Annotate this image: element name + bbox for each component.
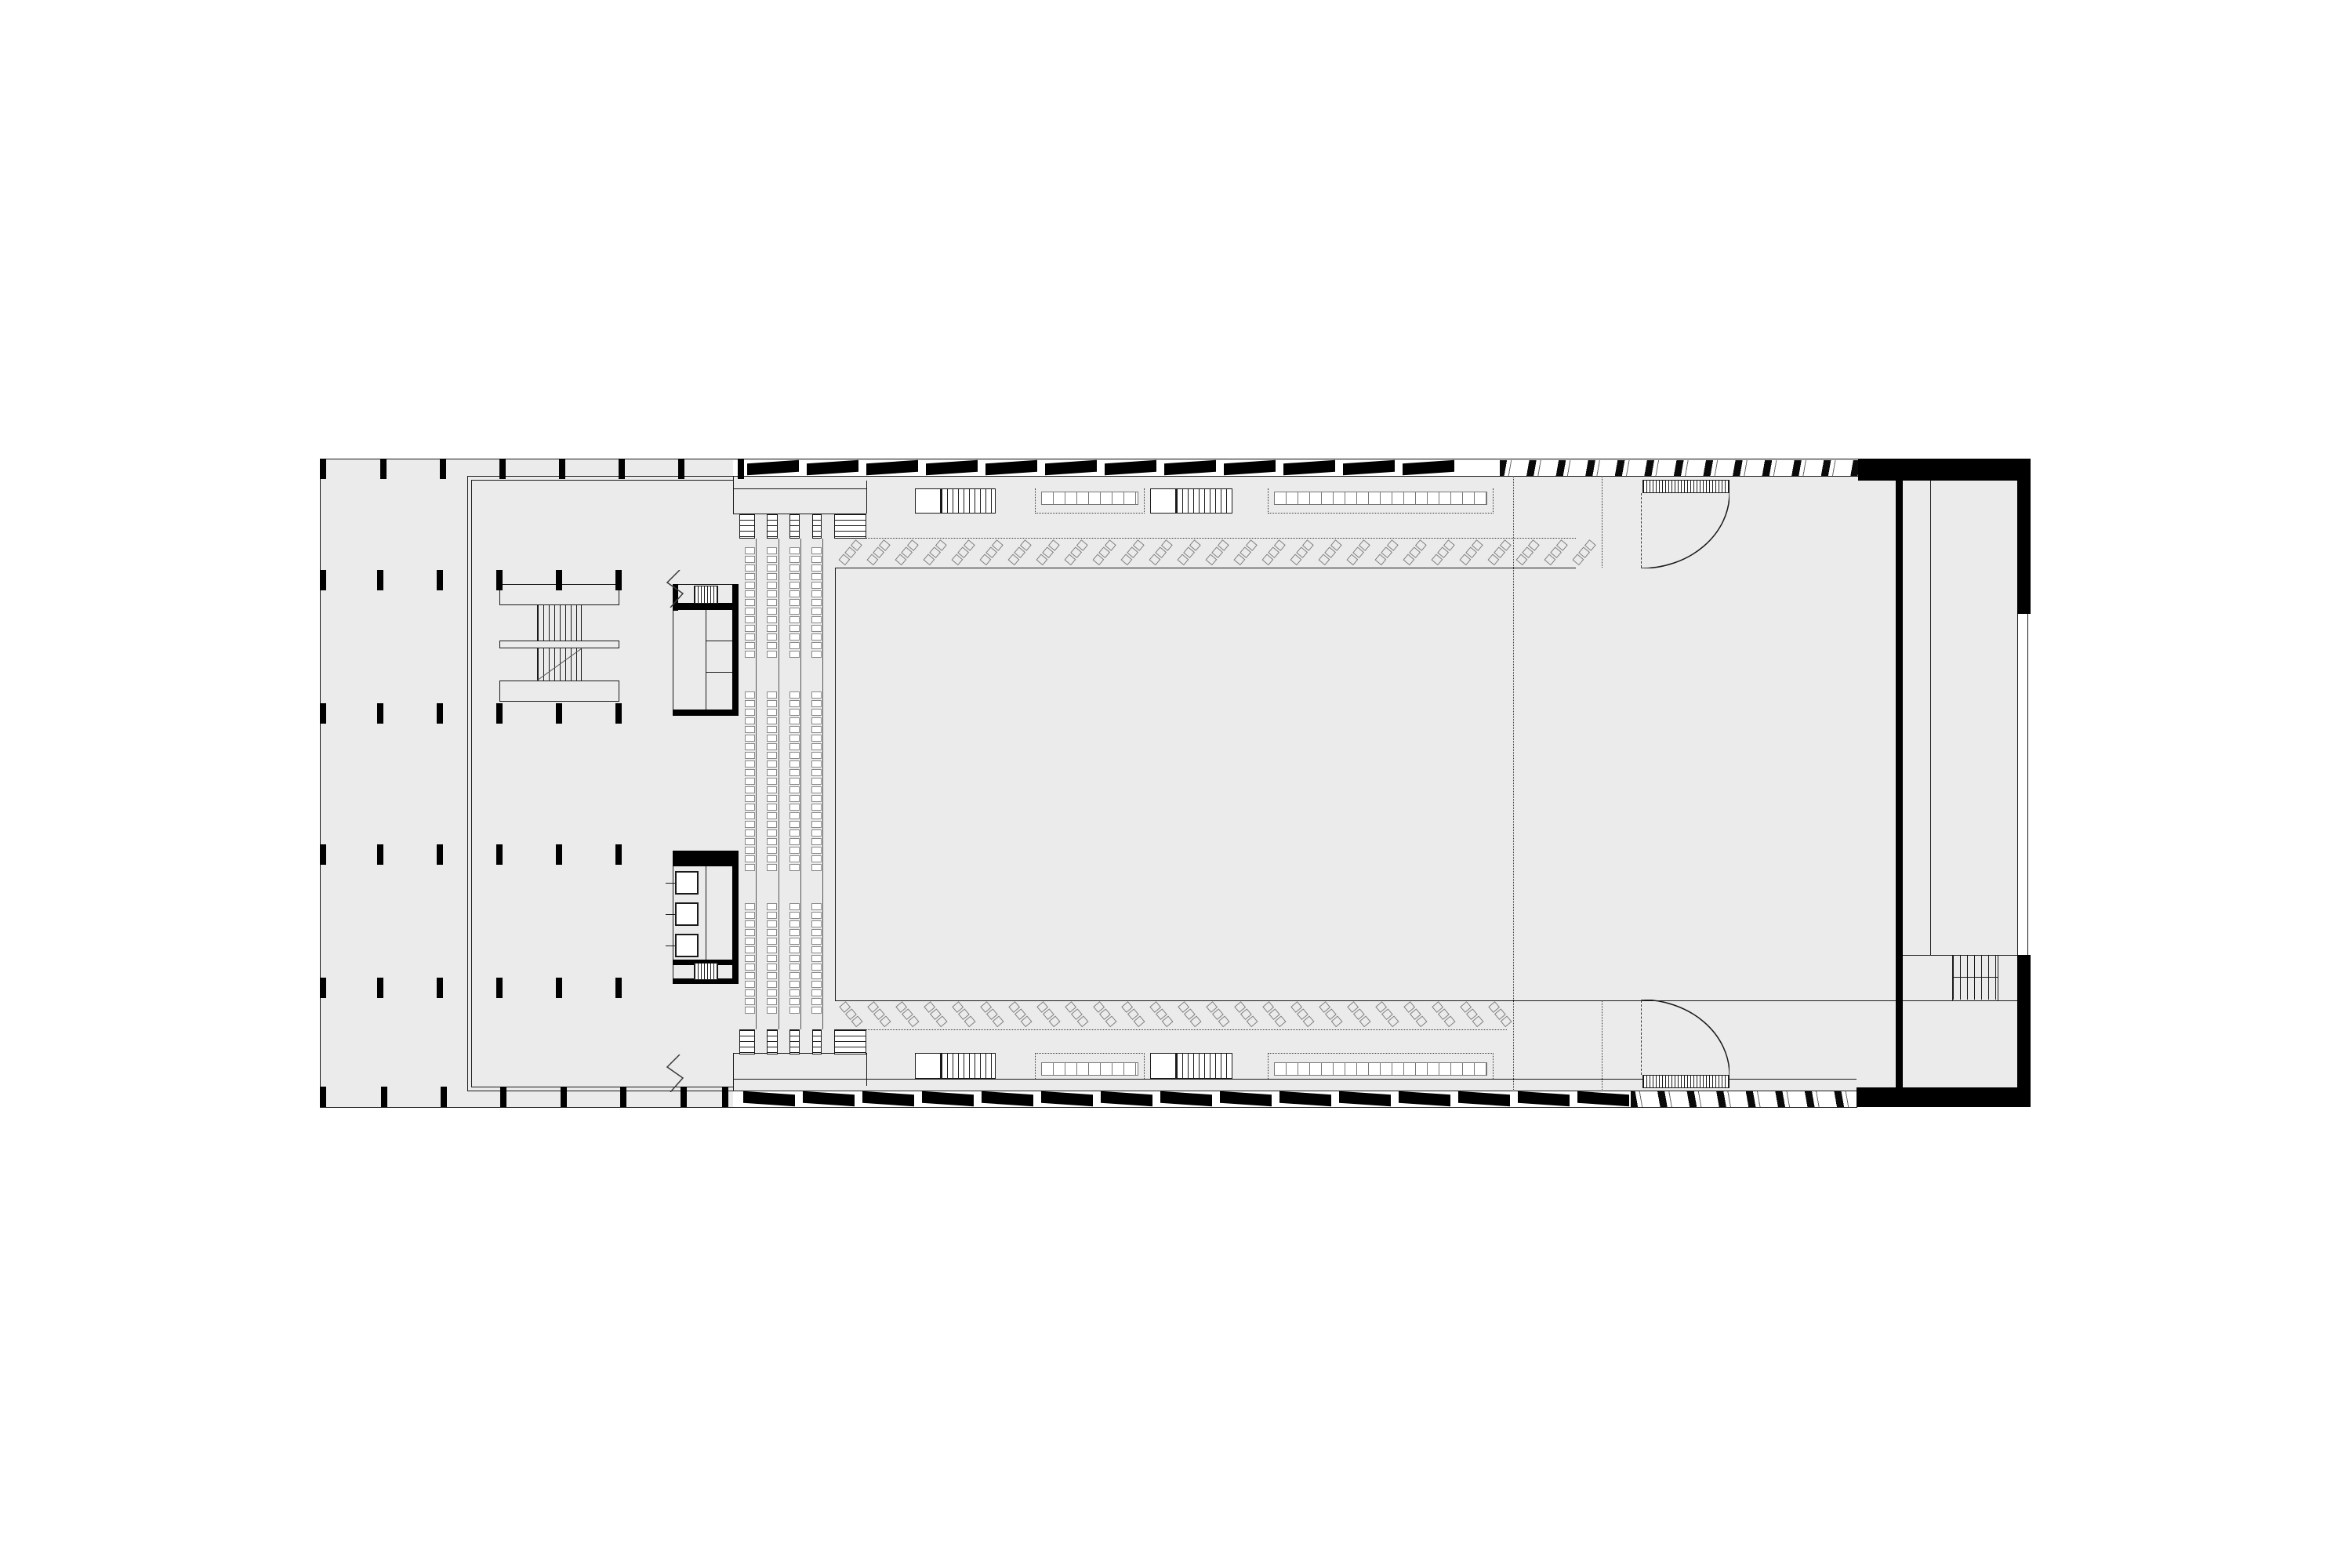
seat: [745, 804, 755, 811]
wall-louver: [1577, 1091, 1629, 1107]
acoustic-panel-chain: [1403, 1001, 1427, 1028]
wall-louver: [1160, 1091, 1212, 1107]
seat: [767, 599, 777, 606]
seat: [811, 903, 822, 910]
seat: [745, 743, 755, 750]
seat: [811, 838, 822, 845]
seat: [767, 582, 777, 589]
seat: [811, 599, 822, 606]
seat: [767, 955, 777, 962]
folded-seat-row: [1274, 492, 1487, 505]
seat: [767, 938, 777, 945]
seat: [811, 642, 822, 649]
acoustic-panel-chain: [923, 539, 947, 566]
seat: [811, 955, 822, 962]
seat: [811, 829, 822, 837]
seat: [789, 972, 800, 979]
seat: [767, 625, 777, 632]
column-tick: [556, 703, 562, 724]
aisle-steps: [812, 514, 822, 539]
entry-landing: [1150, 1053, 1176, 1079]
acoustic-panel-chain: [923, 1001, 947, 1028]
seat: [811, 847, 822, 854]
seat: [789, 735, 800, 742]
seat: [767, 608, 777, 615]
seat: [767, 972, 777, 979]
seat: [789, 855, 800, 862]
seat: [789, 821, 800, 828]
seat: [745, 642, 755, 649]
column-tick: [722, 1087, 728, 1107]
wall-louver: [1343, 460, 1395, 476]
seat: [789, 903, 800, 910]
wall-louver: [1399, 1091, 1450, 1107]
seat: [789, 946, 800, 953]
folded-seat-row: [1041, 492, 1138, 505]
seat: [811, 616, 822, 623]
column-tick: [320, 1087, 326, 1107]
seat: [789, 752, 800, 759]
seat: [789, 829, 800, 837]
seat: [811, 821, 822, 828]
seat: [811, 972, 822, 979]
column-tick: [380, 459, 387, 479]
column-tick: [377, 703, 383, 724]
seat: [767, 912, 777, 919]
seat: [789, 633, 800, 641]
column-tick: [615, 844, 622, 865]
acoustic-panel-chain: [866, 1001, 891, 1028]
seat: [767, 847, 777, 854]
seat: [811, 795, 822, 802]
seat: [767, 920, 777, 927]
acoustic-panel-chain: [1036, 1001, 1060, 1028]
seat: [811, 769, 822, 776]
acoustic-panel-chain: [1346, 1001, 1370, 1028]
wall-louver: [1224, 460, 1276, 476]
acoustic-panel-chain: [1007, 539, 1032, 566]
floor-plan: [320, 457, 2031, 1141]
seat: [745, 778, 755, 785]
column-tick: [320, 459, 326, 479]
seat: [745, 752, 755, 759]
seat: [789, 691, 800, 699]
column-tick: [377, 570, 383, 590]
seat: [811, 855, 822, 862]
acoustic-panel-chain: [1205, 1001, 1229, 1028]
aisle-steps: [767, 514, 778, 539]
column-tick: [556, 570, 562, 590]
seat: [811, 786, 822, 793]
seat: [745, 855, 755, 862]
column-tick: [496, 978, 503, 998]
entry-stair-treads: [1176, 488, 1232, 514]
seat: [789, 700, 800, 707]
column-tick: [496, 703, 503, 724]
seat: [745, 769, 755, 776]
seat: [745, 955, 755, 962]
entry-stair-treads: [941, 488, 996, 514]
wall-louver: [807, 460, 858, 476]
seat: [767, 590, 777, 597]
seat: [789, 938, 800, 945]
acoustic-panel-chain: [1318, 539, 1342, 566]
acoustic-panel-chain: [1374, 539, 1399, 566]
seat: [811, 912, 822, 919]
seat: [745, 547, 755, 554]
seat: [811, 564, 822, 572]
seat: [789, 786, 800, 793]
seat: [811, 760, 822, 768]
seat: [789, 625, 800, 632]
seat: [767, 743, 777, 750]
seat: [745, 760, 755, 768]
entry-landing: [1150, 488, 1176, 514]
wall-louver: [803, 1091, 855, 1107]
seat: [767, 786, 777, 793]
seat: [789, 573, 800, 580]
seat: [745, 838, 755, 845]
seat: [789, 651, 800, 658]
entry-stair-treads: [941, 1053, 996, 1079]
aisle-steps: [789, 514, 800, 539]
aisle-steps: [739, 514, 755, 539]
aisle-steps: [767, 1029, 778, 1054]
column-tick: [437, 570, 443, 590]
seat: [789, 760, 800, 768]
seat: [789, 795, 800, 802]
acoustic-panel-chain: [1487, 1001, 1512, 1028]
column-tick: [320, 570, 326, 590]
wall-louver: [1041, 1091, 1093, 1107]
generated-layer: [320, 457, 2031, 1141]
wall-louver: [743, 1091, 795, 1107]
seat: [811, 582, 822, 589]
seat: [767, 651, 777, 658]
column-tick: [437, 978, 443, 998]
column-tick: [615, 570, 622, 590]
page: { "document": { "type": "architectural-f…: [0, 0, 2352, 1568]
acoustic-panel-chain: [1177, 539, 1201, 566]
acoustic-panel-chain: [1459, 539, 1483, 566]
seat: [789, 564, 800, 572]
aisle-steps: [834, 514, 866, 539]
seat: [767, 778, 777, 785]
seat: [789, 804, 800, 811]
wall-louver: [1045, 460, 1097, 476]
acoustic-panel-chain: [895, 539, 919, 566]
seat: [745, 903, 755, 910]
wall-louver: [926, 460, 978, 476]
seat: [789, 812, 800, 819]
seat: [767, 760, 777, 768]
acoustic-panel-chain: [1149, 1001, 1173, 1028]
seat: [745, 573, 755, 580]
wall-louver-fine: [1631, 1091, 1857, 1107]
seat: [745, 608, 755, 615]
seat: [767, 829, 777, 837]
seat: [745, 920, 755, 927]
seat: [767, 616, 777, 623]
seat: [745, 556, 755, 563]
seat: [789, 590, 800, 597]
seat: [767, 804, 777, 811]
seat: [767, 1007, 777, 1014]
seat: [811, 864, 822, 871]
column-tick: [678, 459, 684, 479]
acoustic-panel-chain: [1459, 1001, 1483, 1028]
seat: [811, 691, 822, 699]
seat: [767, 946, 777, 953]
seat: [745, 795, 755, 802]
seat: [767, 547, 777, 554]
seat: [789, 998, 800, 1005]
column-tick: [320, 978, 326, 998]
seat: [745, 616, 755, 623]
seat: [789, 864, 800, 871]
acoustic-panel-chain: [1149, 539, 1173, 566]
column-tick: [738, 459, 744, 479]
seating-aisle-line: [779, 539, 779, 1029]
seat: [767, 717, 777, 724]
folded-seat-row: [1041, 1062, 1138, 1076]
seat: [789, 769, 800, 776]
wall-louver: [1403, 460, 1454, 476]
seat: [811, 633, 822, 641]
acoustic-panel-chain: [1092, 1001, 1116, 1028]
seat: [767, 573, 777, 580]
seat: [745, 981, 755, 988]
seat: [789, 1007, 800, 1014]
seat: [811, 743, 822, 750]
folded-seat-row: [1274, 1062, 1487, 1076]
column-tick: [496, 570, 503, 590]
column-tick: [615, 978, 622, 998]
seat: [811, 964, 822, 971]
seat: [767, 709, 777, 716]
acoustic-panel-chain: [951, 539, 975, 566]
column-tick: [556, 978, 562, 998]
seat: [767, 821, 777, 828]
seat: [811, 804, 822, 811]
column-tick: [381, 1087, 387, 1107]
wall-louver: [1518, 1091, 1570, 1107]
wall-louver: [1220, 1091, 1272, 1107]
seat: [767, 769, 777, 776]
acoustic-panel-chain: [1431, 539, 1455, 566]
seat: [745, 726, 755, 733]
seat: [811, 929, 822, 936]
seat: [767, 564, 777, 572]
seat: [811, 625, 822, 632]
aisle-steps: [789, 1029, 800, 1054]
wall-louver: [1105, 460, 1156, 476]
seat: [789, 920, 800, 927]
seat: [811, 946, 822, 953]
seat: [789, 709, 800, 716]
seat: [745, 786, 755, 793]
seat: [767, 795, 777, 802]
aisle-steps: [834, 1029, 866, 1054]
seat: [789, 599, 800, 606]
wall-louver: [985, 460, 1037, 476]
seat: [767, 812, 777, 819]
acoustic-panel-chain: [838, 539, 862, 566]
acoustic-panel-chain: [1318, 1001, 1342, 1028]
seat: [745, 946, 755, 953]
wall-louver: [747, 460, 799, 476]
seat: [811, 981, 822, 988]
acoustic-panel-chain: [979, 1001, 1004, 1028]
acoustic-panel-chain: [1120, 539, 1145, 566]
seat: [745, 812, 755, 819]
column-tick: [681, 1087, 687, 1107]
seat: [745, 691, 755, 699]
seat: [811, 700, 822, 707]
aisle-steps: [812, 1029, 822, 1054]
seat: [745, 989, 755, 996]
wall-louver: [866, 460, 918, 476]
seat: [811, 778, 822, 785]
seat: [811, 651, 822, 658]
seat: [767, 998, 777, 1005]
seat: [745, 998, 755, 1005]
seat: [745, 633, 755, 641]
acoustic-panel-chain: [1346, 539, 1370, 566]
seat: [745, 847, 755, 854]
acoustic-panel-chain: [1544, 539, 1568, 566]
entry-stair-treads: [1176, 1053, 1232, 1079]
acoustic-panel-chain: [1572, 539, 1596, 566]
seat: [745, 599, 755, 606]
column-tick: [437, 844, 443, 865]
acoustic-panel-chain: [951, 1001, 975, 1028]
acoustic-panel-chain: [1431, 1001, 1455, 1028]
column-tick: [620, 1087, 626, 1107]
acoustic-panel-chain: [979, 539, 1004, 566]
seat: [745, 821, 755, 828]
seat: [767, 691, 777, 699]
seat: [745, 709, 755, 716]
seat: [745, 864, 755, 871]
seat: [789, 743, 800, 750]
aisle-steps: [739, 1029, 755, 1054]
column-tick: [499, 459, 506, 479]
wall-louver: [982, 1091, 1033, 1107]
seat: [789, 929, 800, 936]
acoustic-panel-chain: [1290, 1001, 1314, 1028]
seat: [811, 547, 822, 554]
seat: [811, 998, 822, 1005]
seat: [789, 547, 800, 554]
column-tick: [440, 459, 446, 479]
seat: [745, 717, 755, 724]
column-tick: [496, 844, 503, 865]
seat: [745, 700, 755, 707]
seating-aisle-line: [756, 539, 757, 1029]
seat: [811, 938, 822, 945]
seat: [767, 726, 777, 733]
column-tick: [559, 459, 565, 479]
seat: [789, 642, 800, 649]
seat: [745, 625, 755, 632]
seat: [811, 608, 822, 615]
acoustic-panel-chain: [1290, 539, 1314, 566]
acoustic-panel-chain: [1092, 539, 1116, 566]
seat: [789, 717, 800, 724]
acoustic-panel-chain: [838, 1001, 862, 1028]
seat: [789, 981, 800, 988]
seat: [767, 838, 777, 845]
seat: [745, 929, 755, 936]
seat: [767, 864, 777, 871]
seat: [811, 726, 822, 733]
acoustic-panel-chain: [1177, 1001, 1201, 1028]
seat: [811, 573, 822, 580]
wall-louver: [1279, 1091, 1331, 1107]
seat: [767, 989, 777, 996]
acoustic-panel-chain: [1007, 1001, 1032, 1028]
seat: [811, 590, 822, 597]
seat: [767, 633, 777, 641]
seat: [789, 838, 800, 845]
column-tick: [441, 1087, 447, 1107]
seat: [767, 981, 777, 988]
wall-louver: [922, 1091, 974, 1107]
acoustic-panel-chain: [1233, 1001, 1258, 1028]
seat: [767, 964, 777, 971]
acoustic-panel-chain: [1261, 539, 1286, 566]
seat: [811, 989, 822, 996]
seat: [789, 912, 800, 919]
acoustic-panel-chain: [1515, 539, 1540, 566]
seating-aisle-line: [822, 539, 823, 1029]
seat: [789, 608, 800, 615]
seat: [745, 1007, 755, 1014]
column-tick: [437, 703, 443, 724]
seat: [789, 964, 800, 971]
seat: [745, 829, 755, 837]
wall-louver: [1101, 1091, 1152, 1107]
acoustic-panel-chain: [1205, 539, 1229, 566]
seat: [789, 989, 800, 996]
column-tick: [377, 978, 383, 998]
seat: [811, 735, 822, 742]
seat: [789, 955, 800, 962]
acoustic-panel-chain: [1233, 539, 1258, 566]
wall-louver-fine: [1500, 460, 1858, 476]
seat: [745, 651, 755, 658]
seat: [767, 735, 777, 742]
acoustic-panel-chain: [1036, 539, 1060, 566]
seat: [767, 929, 777, 936]
wall-louver: [1458, 1091, 1510, 1107]
seat: [745, 564, 755, 572]
seat: [789, 847, 800, 854]
seat: [767, 700, 777, 707]
seat: [745, 912, 755, 919]
seat: [789, 616, 800, 623]
seat: [789, 582, 800, 589]
acoustic-panel-chain: [1487, 539, 1512, 566]
seat: [811, 717, 822, 724]
seat: [767, 855, 777, 862]
seat: [745, 938, 755, 945]
seat: [767, 556, 777, 563]
wall-louver: [1283, 460, 1335, 476]
seat: [811, 920, 822, 927]
seat: [811, 812, 822, 819]
